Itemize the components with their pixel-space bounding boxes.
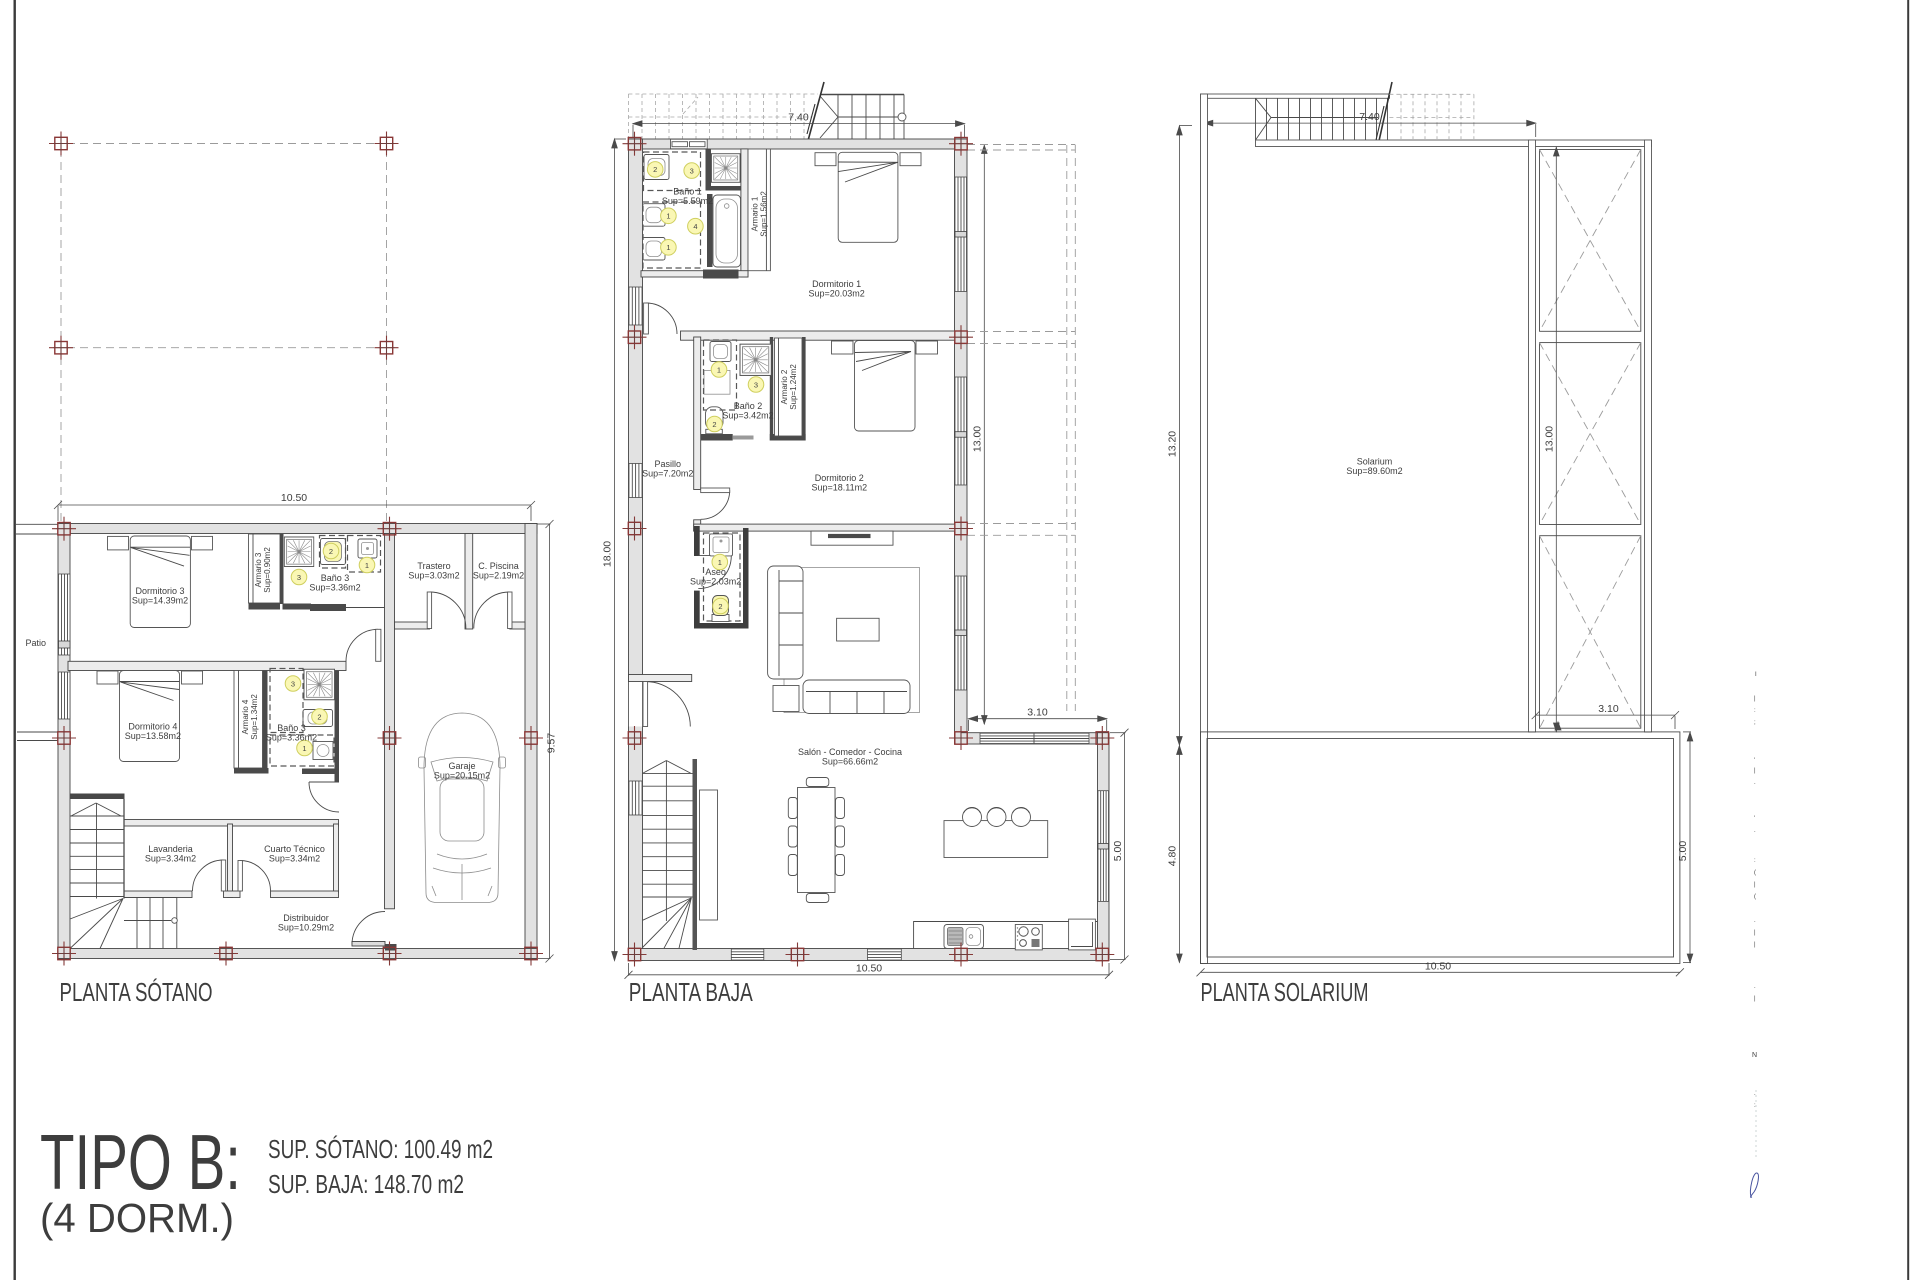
svg-text:;: ; [1754,720,1756,726]
svg-text:Sup=5.59m2: Sup=5.59m2 [662,196,713,206]
svg-text:Sup=89.60m2: Sup=89.60m2 [1346,466,1402,476]
svg-text:.: . [1754,984,1756,990]
svg-text:3: 3 [754,380,758,389]
svg-text:1: 1 [666,243,670,252]
svg-text:13.20: 13.20 [1167,431,1179,457]
svg-text:Sup=13.58m2: Sup=13.58m2 [125,731,181,741]
svg-text:Sup=10.29m2: Sup=10.29m2 [278,923,334,933]
svg-text:I: I [1755,672,1757,678]
svg-text:Armario 4: Armario 4 [241,699,250,734]
svg-text:Sup=3.34m2: Sup=3.34m2 [269,854,320,864]
svg-text:1: 1 [365,561,369,570]
svg-text:|: | [1754,768,1756,774]
svg-text:13.00: 13.00 [1544,426,1556,452]
svg-text:2: 2 [317,712,321,721]
svg-text:Pasillo: Pasillo [655,459,682,469]
svg-text:(: ( [1754,870,1756,876]
svg-text:Sup=20.03m2: Sup=20.03m2 [808,289,864,299]
svg-text:10.50: 10.50 [1425,960,1451,972]
svg-text:C. Piscina: C. Piscina [478,561,519,571]
svg-text:4.80: 4.80 [1167,846,1179,867]
svg-text:|: | [1754,996,1756,1002]
svg-text:Baño 3: Baño 3 [277,723,306,733]
svg-text:Aseo: Aseo [705,567,726,577]
svg-text:Sup=1.24m2: Sup=1.24m2 [789,364,798,410]
svg-text:1: 1 [666,212,670,221]
svg-text:13.00: 13.00 [972,426,984,452]
svg-text:|: | [1754,930,1756,936]
svg-text:3: 3 [690,166,694,175]
svg-text:Armario 3: Armario 3 [254,552,263,587]
svg-text:Distribuidor: Distribuidor [283,913,329,923]
svg-text:|: | [1754,942,1756,948]
svg-text:Baño 2: Baño 2 [734,401,763,411]
svg-text:1: 1 [717,365,721,374]
svg-text:1: 1 [302,744,306,753]
svg-text:Dormitorio 2: Dormitorio 2 [815,473,864,483]
svg-text:18.00: 18.00 [602,541,614,567]
svg-text:Sup=1.56m2: Sup=1.56m2 [760,191,769,237]
svg-text:10.50: 10.50 [856,963,882,975]
svg-text:SUP. SÓTANO: 100.49 m2: SUP. SÓTANO: 100.49 m2 [268,1134,493,1164]
svg-text:2: 2 [712,420,716,429]
svg-text:3: 3 [291,679,295,688]
svg-text:Sup=20.15m2: Sup=20.15m2 [434,771,490,781]
svg-text:Armario 2: Armario 2 [780,369,789,404]
svg-text:PLANTA BAJA: PLANTA BAJA [629,979,753,1007]
svg-text:1: 1 [718,558,722,567]
svg-text:SUP. BAJA: 148.70 m2: SUP. BAJA: 148.70 m2 [268,1169,464,1199]
svg-text:PLANTA SOLARIUM: PLANTA SOLARIUM [1201,979,1369,1007]
svg-text:Sup=2.19m2: Sup=2.19m2 [473,571,524,581]
svg-text:TIPO B:: TIPO B: [40,1118,241,1206]
svg-text:N: N [1752,1052,1757,1059]
svg-text:|: | [1754,696,1756,702]
svg-text:Sup=1.34m2: Sup=1.34m2 [250,694,259,740]
svg-text::: : [1754,858,1756,864]
svg-text:10.50: 10.50 [281,492,307,504]
svg-text:.: . [1754,1091,1756,1097]
svg-text:4: 4 [693,222,697,231]
svg-text:Dormitorio 4: Dormitorio 4 [128,722,177,732]
svg-text:Armario 1: Armario 1 [751,196,760,231]
svg-text:5.00: 5.00 [1677,841,1689,862]
svg-text:Sup=3.36m2: Sup=3.36m2 [309,583,360,593]
svg-text:7.40: 7.40 [788,112,809,124]
svg-text:Sup=3.36m2: Sup=3.36m2 [266,733,317,743]
svg-text:5.00: 5.00 [1112,841,1124,862]
svg-text:3.10: 3.10 [1598,703,1619,715]
svg-text:Trastero: Trastero [417,561,450,571]
svg-text:Patio: Patio [25,638,46,648]
svg-text:Sup=3.03m2: Sup=3.03m2 [408,571,459,581]
svg-text::: : [1754,708,1756,714]
svg-text:Salón - Comedor - Cocina: Salón - Comedor - Cocina [798,747,902,757]
svg-text:9.57: 9.57 [546,733,558,754]
svg-text::: : [1754,1103,1756,1109]
svg-text:2: 2 [329,547,333,556]
svg-text:Sup=14.39m2: Sup=14.39m2 [132,596,188,606]
svg-text:(: ( [1754,894,1756,900]
svg-text:': ' [1754,816,1755,822]
svg-text:Baño 1: Baño 1 [673,187,702,197]
svg-text:Garaje: Garaje [448,761,475,771]
svg-text:2: 2 [718,602,722,611]
svg-text:Sup=7.20m2: Sup=7.20m2 [642,469,693,479]
svg-text:Solarium: Solarium [1357,457,1393,467]
svg-text:7.40: 7.40 [1359,111,1380,123]
svg-text:Dormitorio 3: Dormitorio 3 [135,586,184,596]
svg-text:PLANTA SÓTANO: PLANTA SÓTANO [60,978,213,1007]
svg-text:3: 3 [297,573,301,582]
svg-text:.: . [1754,780,1756,786]
svg-text:Sup=3.42m2: Sup=3.42m2 [722,411,773,421]
svg-text:Sup=3.34m2: Sup=3.34m2 [145,854,196,864]
svg-text:|: | [1754,882,1756,888]
svg-text:.: . [1754,918,1756,924]
svg-text:Lavanderia: Lavanderia [148,844,193,854]
svg-text:Sup=0.90m2: Sup=0.90m2 [263,547,272,593]
svg-text:3.10: 3.10 [1027,707,1048,719]
svg-text:Sup=2.03m2: Sup=2.03m2 [690,577,741,587]
svg-text:2: 2 [653,165,657,174]
svg-text:(4 DORM.): (4 DORM.) [40,1195,234,1241]
svg-text:Sup=18.11m2: Sup=18.11m2 [811,483,867,493]
svg-text:': ' [1754,758,1755,764]
svg-text:Dormitorio 1: Dormitorio 1 [812,279,861,289]
svg-text:Cuarto Técnico: Cuarto Técnico [264,844,325,854]
svg-text:Baño 3: Baño 3 [321,573,350,583]
svg-text:.: . [1754,828,1756,834]
svg-text:Sup=66.66m2: Sup=66.66m2 [822,757,878,767]
